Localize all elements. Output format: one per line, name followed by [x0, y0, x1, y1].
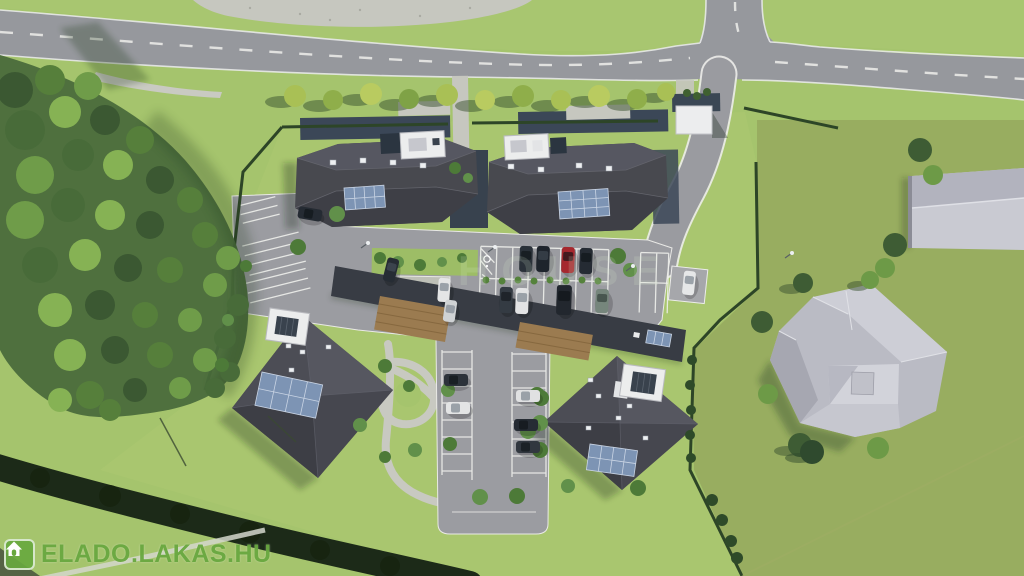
- brand-watermark-text: ELADO.LAKAS.HU: [41, 540, 272, 569]
- house-icon: [4, 539, 35, 570]
- rooftop-dark-box: [380, 133, 401, 154]
- brand-watermark: ELADO.LAKAS.HU: [4, 539, 272, 570]
- roof-vent: [633, 332, 640, 338]
- rooftop-terrace: [504, 134, 549, 160]
- solar-array: [558, 189, 610, 219]
- rooftop-terrace: [266, 308, 310, 345]
- utility-roof: [676, 106, 712, 134]
- rooftop-dark-box: [550, 137, 567, 154]
- faint-watermark: HOUSE: [458, 247, 672, 295]
- solar-array: [344, 185, 385, 210]
- aerial-render: HOUSE ELADO.LAKAS.HU: [0, 0, 1024, 576]
- apartment-building-northeast: [487, 134, 668, 234]
- rooftop-terrace: [400, 131, 445, 159]
